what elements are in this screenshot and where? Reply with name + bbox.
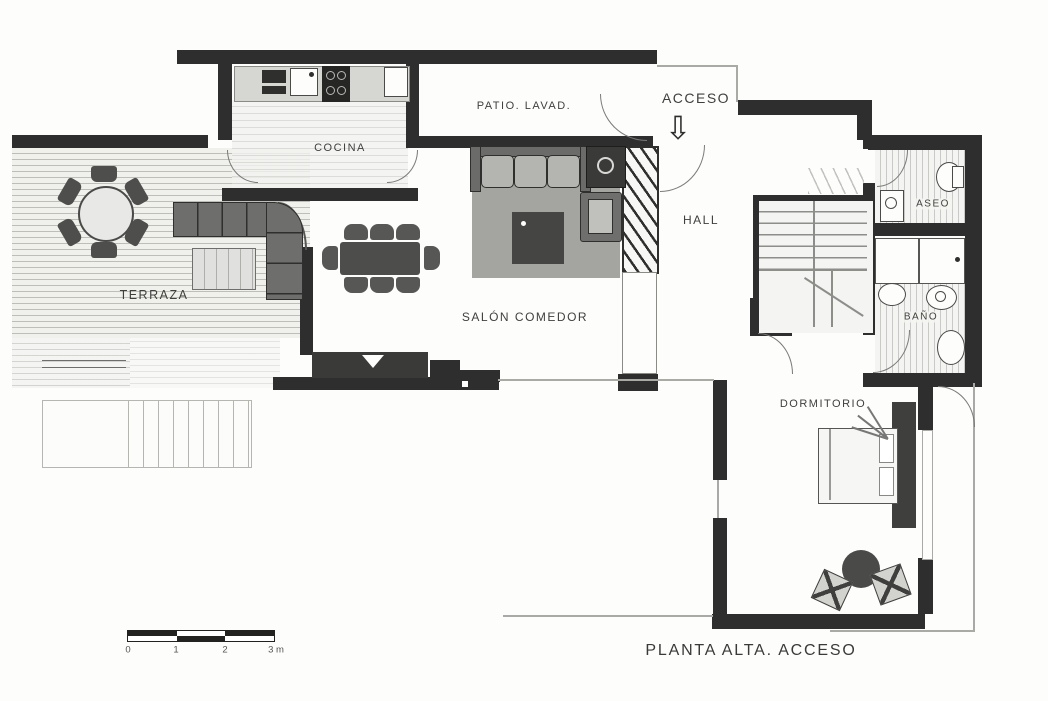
outdoor-sofa-corner [266,202,303,300]
scale-tick-2: 2 [222,645,227,656]
wall-segment [738,100,870,115]
floor-plan: TERRAZA COCINA PATIO. LAVAD. ACCESO ⇩ HA… [0,0,1048,701]
wall-segment [713,425,727,480]
balcony-edge-top [498,379,714,381]
entry-door-arc [600,94,647,141]
stove-icon [322,66,350,102]
room-label-cocina: COCINA [314,142,366,154]
scale-tick-1: 1 [173,645,178,656]
stair-upper-flight-hatch [808,168,864,194]
outdoor-ottoman [192,248,256,290]
dorm-right-window [922,430,933,560]
stair-landing-line [831,269,833,327]
dining-chair [424,246,440,270]
burner [337,71,346,80]
room-label-bano: BAÑO [902,312,940,323]
outdoor-sofa-horizontal [173,202,275,237]
sofa-cushion [481,155,514,188]
shower-drain-dot [955,257,960,262]
armchair [580,192,622,242]
terraza-chair [91,166,117,182]
wall-segment [222,188,418,201]
dormitorio-door-arc [758,333,793,374]
burner [337,86,346,95]
tv-marker-icon [362,355,384,368]
burner [326,86,335,95]
washbasin-icon [926,285,957,310]
room-label-acceso: ACCESO [662,90,730,106]
scale-segment [177,636,226,641]
dining-chair [370,224,394,240]
wall-segment [965,135,982,383]
kitchen-door-arc-right [387,150,418,183]
room-label-aseo: ASEO [914,199,952,210]
table-dot [521,221,526,226]
wall-segment [863,135,875,149]
toilet-icon [937,330,965,365]
wall-segment [713,518,727,616]
coffee-table [512,212,564,264]
wall-segment [918,383,933,430]
washbasin-icon [880,190,904,222]
shower-glass [919,238,965,284]
wall-segment [713,380,727,427]
terraza-chair [91,242,117,258]
balcony-edge-bottom [830,630,975,632]
dining-chair [322,246,338,270]
sofa [470,146,590,192]
wall-segment [918,558,933,614]
bed-fold-line [829,429,831,500]
shelving-hatch-strip [622,146,659,274]
wall-segment [218,64,232,140]
dining-chair [396,224,420,240]
dining-table [340,242,420,275]
acceso-arrow-icon: ⇩ [665,112,692,144]
hall-cabinet [622,272,657,374]
exterior-stairs-upper [42,360,126,368]
room-label-salon-comedor: SALÓN COMEDOR [462,310,588,324]
coffee-machine-icon [262,70,286,83]
wall-segment [868,223,965,236]
scale-tick-0: 0 [125,645,130,656]
bed [818,428,898,504]
exterior-landing [42,400,130,468]
toilet-tank [952,166,964,188]
sink-drain-dot [309,72,314,77]
wall-segment [618,374,658,391]
vestibule-outline-right [736,65,738,102]
exterior-stairs-steps [128,400,252,468]
stair-landing-line [759,269,867,271]
armchair-seat [588,199,613,234]
wall-segment [12,135,208,148]
burner [326,71,335,80]
acceso-hall-door-arc [660,145,705,192]
pillow [879,467,894,496]
balcony-door-arc [938,386,975,427]
vestibule-outline-top [657,65,737,67]
dorm-window-line [717,480,719,518]
sofa-cushion [514,155,547,188]
scale-segment [225,631,274,636]
wall-segment [712,614,925,629]
wall-segment [857,100,872,140]
dining-chair [396,277,420,293]
dining-chair [344,277,368,293]
wall-dot [462,381,468,387]
plan-title: PLANTA ALTA. ACCESO [645,642,856,660]
room-label-dormitorio: DORMITORIO [780,398,866,410]
terraza-deck-right-faint [130,336,280,388]
room-label-patio-lavadero: PATIO. LAVAD. [477,100,571,112]
scale-segment [128,631,177,636]
washbasin-icon [878,283,906,306]
kitchen-sink-icon [290,68,318,96]
kitchen-cabinet-icon [384,67,408,97]
stair-divider [813,201,815,327]
sofa-cushion [547,155,580,188]
terrace-edge-lower [503,615,713,617]
stove-ring [597,157,614,174]
dining-chair [370,277,394,293]
wall-segment [177,50,657,64]
scale-bar [127,630,275,642]
basin-bowl [935,291,946,302]
dining-chair [344,224,368,240]
room-label-hall: HALL [683,213,719,227]
fireplace-stove-icon [586,146,626,188]
basin-bowl [885,197,897,209]
scale-tick-3: 3 m [268,645,284,656]
staircase [753,195,873,333]
shower-tray [875,238,919,284]
small-appliance-icon [262,86,286,94]
room-label-terraza: TERRAZA [120,288,189,302]
sofa-arm [470,146,481,192]
